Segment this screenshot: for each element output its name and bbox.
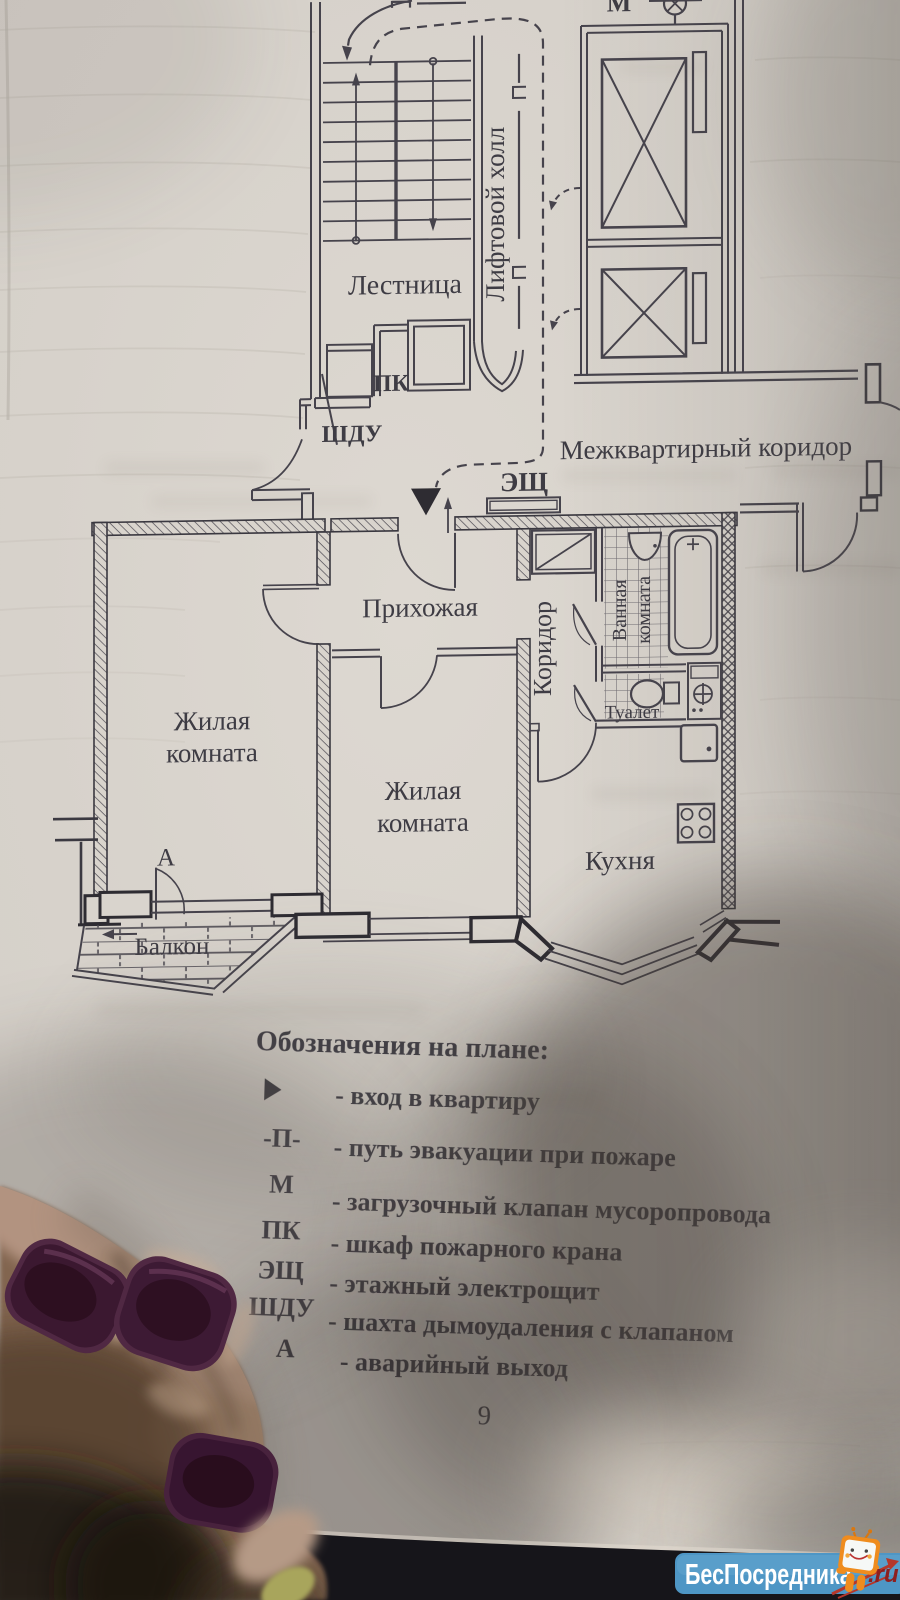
svg-text:.ru: .ru (868, 1561, 899, 1588)
svg-text:Жилая: Жилая (174, 705, 251, 736)
svg-text:Прихожая: Прихожая (362, 592, 478, 624)
svg-text:ЭЩ: ЭЩ (500, 466, 548, 497)
svg-text:А: А (157, 844, 175, 871)
svg-text:БесПосредника: БесПосредника (685, 1559, 852, 1591)
svg-text:Балкон: Балкон (135, 933, 210, 961)
svg-text:Лестница: Лестница (348, 269, 463, 302)
svg-text:комната: комната (377, 807, 469, 838)
svg-text:Коридор: Коридор (528, 601, 557, 697)
svg-text:Лифтовой холл: Лифтовой холл (480, 127, 510, 302)
svg-text:комната: комната (166, 737, 258, 768)
svg-text:ШДУ: ШДУ (322, 421, 383, 448)
svg-text:Жилая: Жилая (385, 775, 462, 806)
svg-text:ПК: ПК (373, 371, 410, 398)
